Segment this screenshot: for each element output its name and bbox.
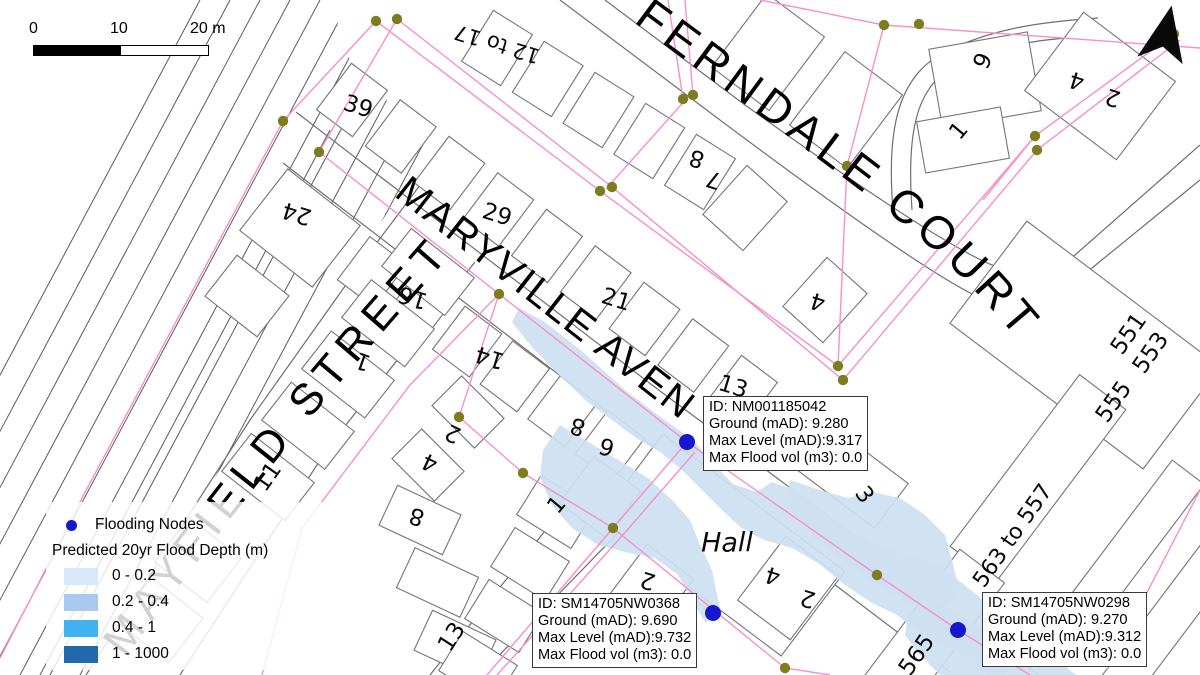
callout-max-level: Max Level (mAD):9.312 — [988, 629, 1141, 646]
flooding-node[interactable] — [679, 434, 695, 450]
flooding-node[interactable] — [705, 605, 721, 621]
scale-bar-fill — [34, 46, 121, 55]
manhole-node — [314, 147, 324, 157]
callout-max-flood: Max Flood vol (m3): 0.0 — [709, 450, 862, 467]
manhole-node — [678, 94, 688, 104]
manhole-node — [278, 116, 288, 126]
building-block — [205, 255, 289, 337]
callout-max-flood: Max Flood vol (m3): 0.0 — [988, 646, 1141, 663]
flood-depth-swatch-3 — [64, 620, 98, 637]
manhole-node — [518, 468, 528, 478]
scale-tick-0: 0 — [29, 20, 38, 38]
legend-class-label: 0.4 - 1 — [112, 619, 156, 637]
flooding-node-legend-icon — [66, 520, 77, 531]
manhole-node — [595, 186, 605, 196]
manhole-node — [1030, 131, 1040, 141]
legend-panel: Flooding Nodes Predicted 20yr Flood Dept… — [46, 502, 322, 670]
callout-id-line: ID: NM001185042 — [709, 399, 862, 416]
callout-max-level: Max Level (mAD):9.732 — [538, 630, 691, 647]
manhole-node — [688, 90, 698, 100]
flood-depth-swatch-1 — [64, 568, 98, 585]
scale-bar-graphic — [33, 45, 209, 56]
flood-depth-swatch-4 — [64, 646, 98, 663]
legend-class-label: 0 - 0.2 — [112, 567, 156, 585]
manhole-node — [780, 663, 790, 673]
legend-class-label: 0.2 - 0.4 — [112, 593, 169, 611]
manhole-node — [607, 182, 617, 192]
manhole-node — [833, 361, 843, 371]
manhole-node — [371, 16, 381, 26]
flood-map-view: MAYFIELD STREET MARYVILLE AVEN FERNDALE … — [0, 0, 1200, 675]
scale-tick-10: 10 — [110, 20, 128, 38]
legend-title: Predicted 20yr Flood Depth (m) — [52, 542, 322, 560]
node-callout-NM001185042: ID: NM001185042 Ground (mAD): 9.280 Max … — [703, 396, 868, 471]
manhole-node — [392, 14, 402, 24]
callout-max-flood: Max Flood vol (m3): 0.0 — [538, 647, 691, 664]
scale-tick-20: 20 m — [190, 20, 226, 38]
legend-nodes-label: Flooding Nodes — [95, 516, 204, 534]
manhole-node — [914, 19, 924, 29]
node-callout-SM14705NW0368: ID: SM14705NW0368 Ground (mAD): 9.690 Ma… — [532, 593, 697, 668]
building — [205, 255, 289, 337]
callout-ground: Ground (mAD): 9.690 — [538, 613, 691, 630]
node-callout-SM14705NW0298: ID: SM14705NW0298 Ground (mAD): 9.270 Ma… — [982, 592, 1147, 667]
manhole-node — [1032, 145, 1042, 155]
flooding-node[interactable] — [950, 622, 966, 638]
manhole-node — [608, 523, 618, 533]
callout-id-line: ID: SM14705NW0298 — [988, 595, 1141, 612]
hall-label: Hall — [701, 528, 753, 559]
callout-ground: Ground (mAD): 9.270 — [988, 612, 1141, 629]
callout-id-line: ID: SM14705NW0368 — [538, 596, 691, 613]
manhole-node — [838, 375, 848, 385]
manhole-node — [872, 570, 882, 580]
callout-max-level: Max Level (mAD):9.317 — [709, 433, 862, 450]
legend-class-label: 1 - 1000 — [112, 645, 169, 663]
manhole-node — [879, 20, 889, 30]
scale-bar: 0 10 20 m — [30, 20, 240, 66]
flood-depth-swatch-2 — [64, 594, 98, 611]
callout-ground: Ground (mAD): 9.280 — [709, 416, 862, 433]
